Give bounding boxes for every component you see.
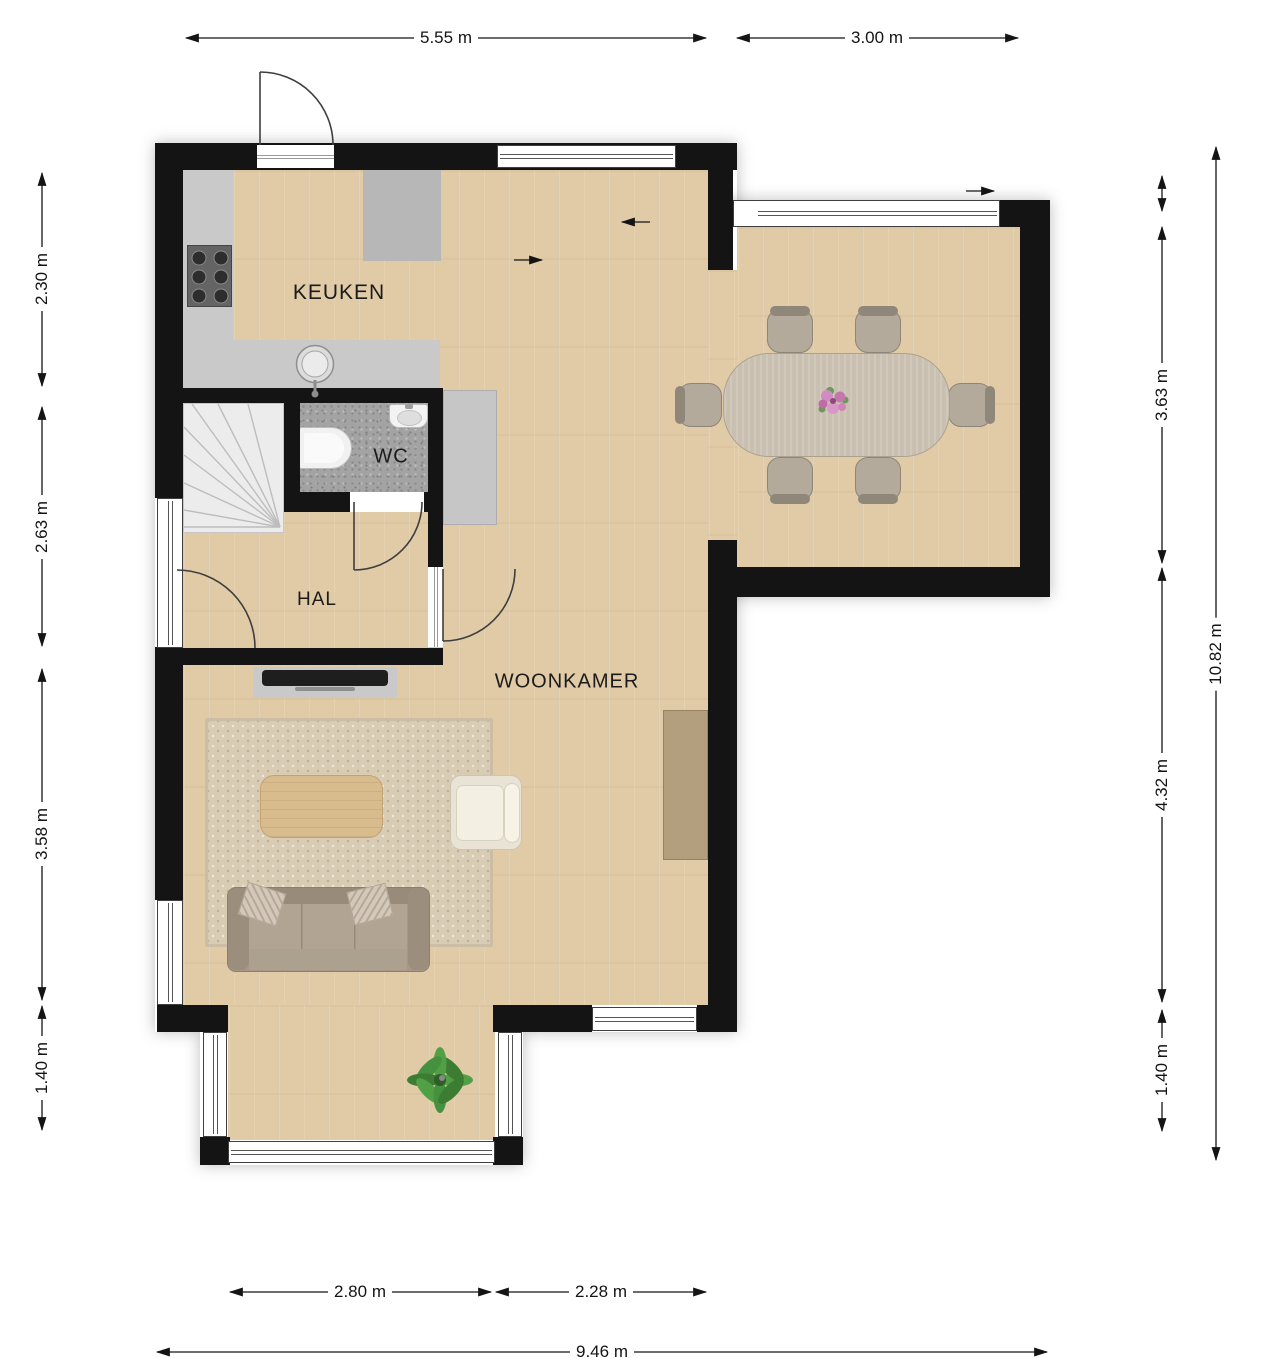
plan-linework: [0, 0, 1280, 1358]
room-label-hall: HAL: [297, 589, 337, 611]
living-door-swing: [443, 569, 515, 641]
dimension-lines: [42, 38, 1216, 1352]
flower-bouquet: [819, 387, 849, 414]
kitchen-sink: [297, 346, 334, 398]
dim-bottom-bay: 2.80 m: [328, 1281, 392, 1303]
window-slide-arrows: [514, 191, 994, 260]
staircase-treads: [184, 404, 280, 527]
front-door-swing: [260, 72, 333, 145]
room-label-kitchen: KEUKEN: [293, 281, 385, 305]
side-entry-door-swing: [177, 570, 255, 648]
dim-bottom-living: 2.28 m: [569, 1281, 633, 1303]
gas-hob-burners: [192, 251, 228, 303]
dim-right-bay: 1.40 m: [1151, 1038, 1173, 1102]
wc-door-swing: [354, 502, 422, 570]
dim-right-total: 10.82 m: [1205, 617, 1227, 690]
dim-top-dining: 3.00 m: [845, 27, 909, 49]
floor-plan-canvas: KEUKEN WC HAL WOONKAMER 5.55 m 3.00 m 2.…: [0, 0, 1280, 1358]
room-label-wc: WC: [373, 446, 408, 469]
dim-right-living: 4.32 m: [1151, 753, 1173, 817]
dim-bottom-total: 9.46 m: [570, 1341, 634, 1358]
dim-top-kitchen: 5.55 m: [414, 27, 478, 49]
dim-left-kitchen: 2.30 m: [31, 247, 53, 311]
dim-left-hall: 2.63 m: [31, 495, 53, 559]
potted-plant: [407, 1047, 473, 1113]
room-label-living: WOONKAMER: [495, 671, 640, 694]
dim-right-dining: 3.63 m: [1151, 363, 1173, 427]
dim-left-living: 3.58 m: [31, 802, 53, 866]
dim-left-bay: 1.40 m: [31, 1036, 53, 1100]
